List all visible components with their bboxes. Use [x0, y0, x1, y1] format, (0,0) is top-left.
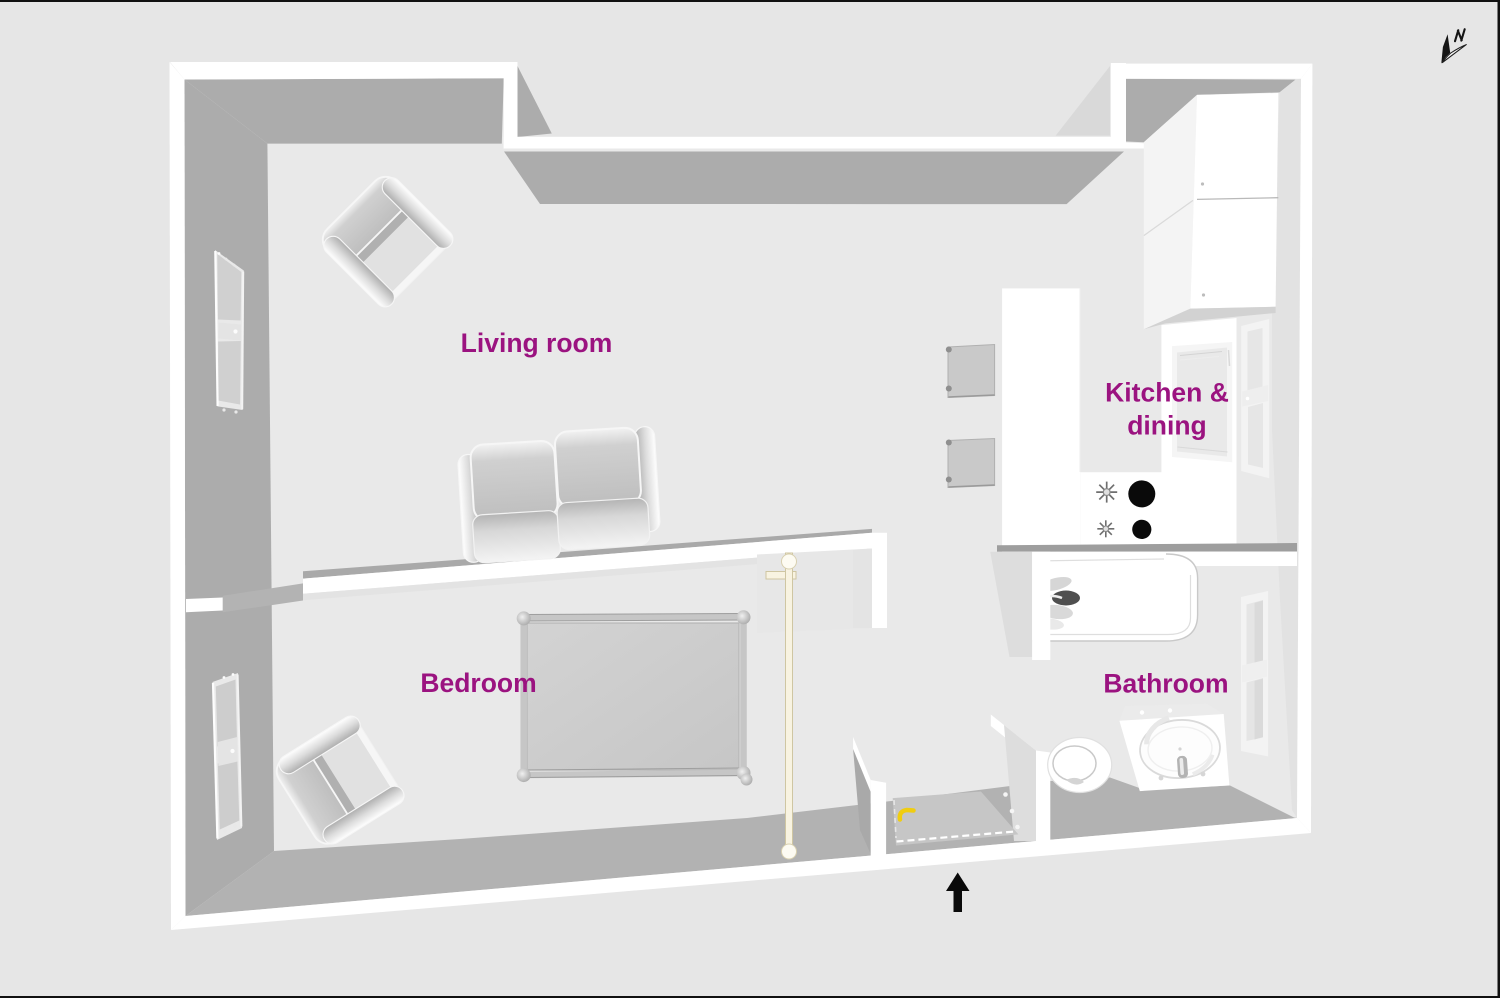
svg-text:Living room: Living room	[461, 328, 613, 358]
svg-text:dining: dining	[1127, 411, 1206, 441]
svg-text:Bedroom: Bedroom	[420, 668, 536, 698]
svg-text:Kitchen &: Kitchen &	[1105, 378, 1229, 408]
svg-text:Bathroom: Bathroom	[1103, 669, 1228, 699]
